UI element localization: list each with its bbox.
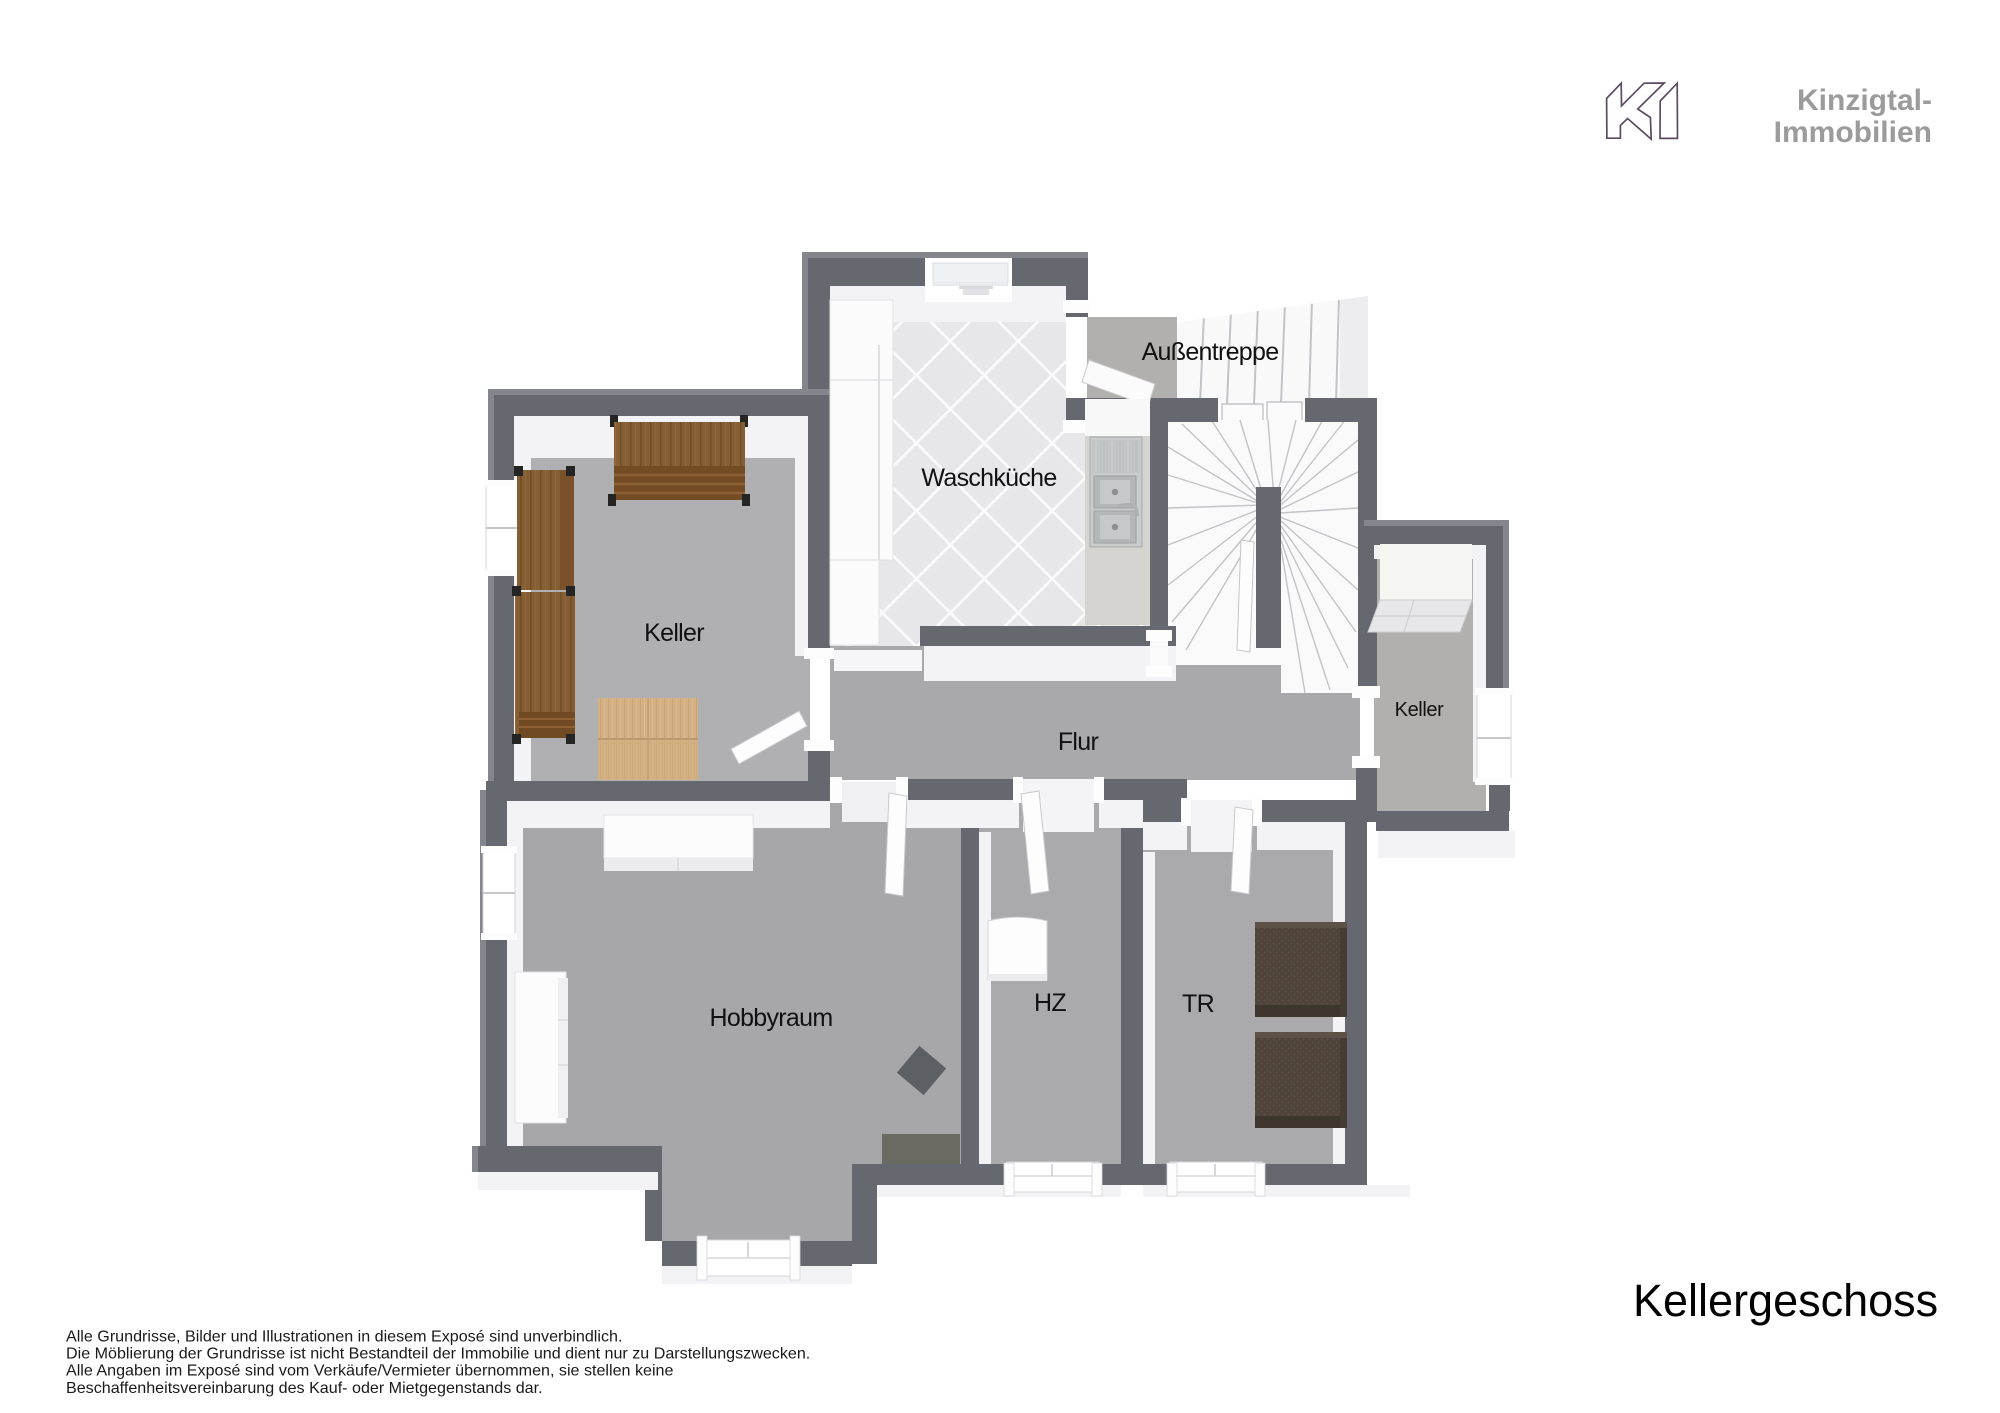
- svg-text:Alle Angaben im Exposé sind vo: Alle Angaben im Exposé sind vom Verkäufe…: [66, 1362, 673, 1380]
- svg-text:Kellergeschoss: Kellergeschoss: [1633, 1275, 1938, 1326]
- svg-text:Keller: Keller: [644, 619, 704, 647]
- svg-text:Alle Grundrisse, Bilder und Il: Alle Grundrisse, Bilder und Illustration…: [66, 1328, 622, 1346]
- svg-text:TR: TR: [1182, 990, 1214, 1018]
- svg-text:Außentreppe: Außentreppe: [1142, 338, 1279, 366]
- svg-text:Keller: Keller: [1395, 699, 1444, 721]
- svg-text:Waschküche: Waschküche: [921, 464, 1056, 492]
- svg-text:HZ: HZ: [1034, 989, 1066, 1017]
- svg-text:Die Möblierung der Grundrisse: Die Möblierung der Grundrisse ist nicht …: [66, 1345, 810, 1363]
- svg-text:Kinzigtal-: Kinzigtal-: [1797, 84, 1932, 117]
- svg-text:Beschaffenheitsvereinbarung de: Beschaffenheitsvereinbarung des Kauf- od…: [66, 1379, 543, 1397]
- svg-text:Immobilien: Immobilien: [1774, 116, 1932, 149]
- svg-text:Hobbyraum: Hobbyraum: [710, 1004, 833, 1032]
- svg-text:Flur: Flur: [1058, 728, 1099, 756]
